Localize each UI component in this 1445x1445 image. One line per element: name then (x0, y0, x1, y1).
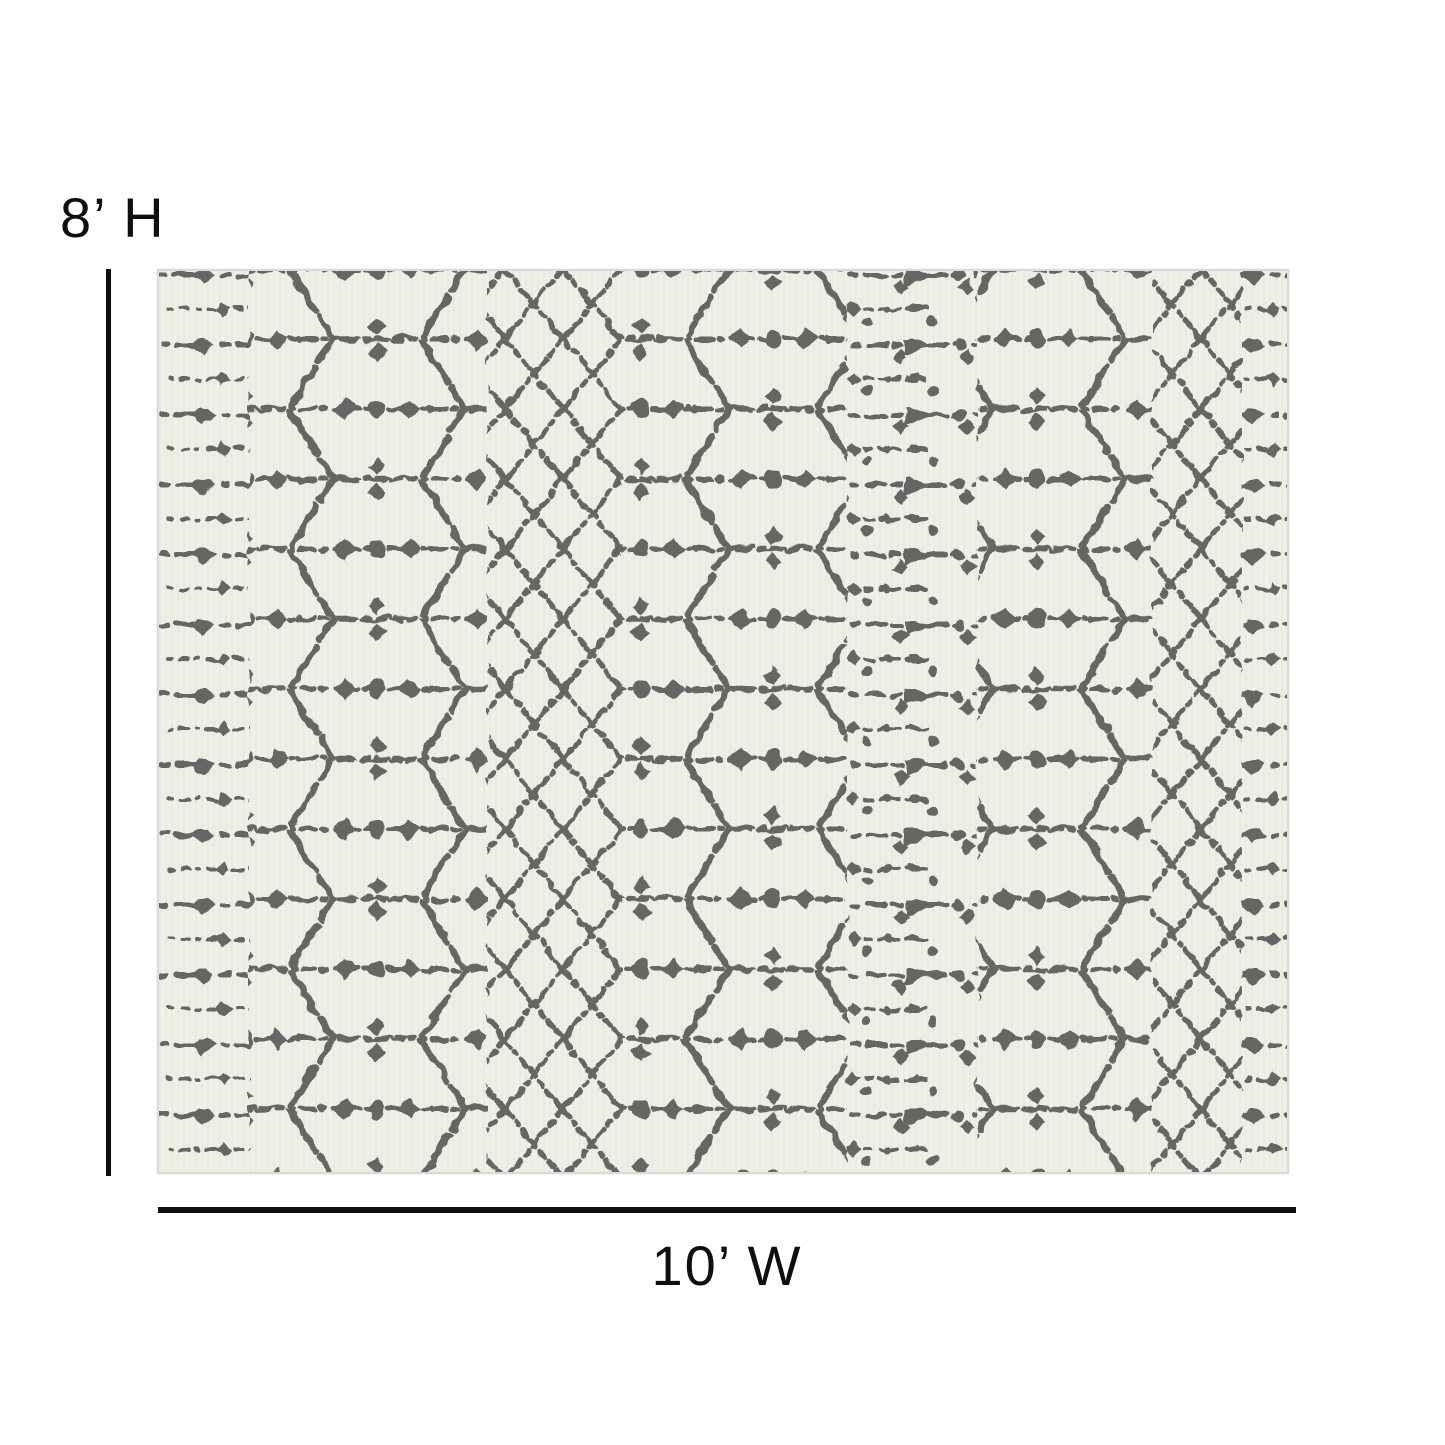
rug-pattern (157, 269, 1289, 1174)
width-dimension-line (158, 1207, 1296, 1213)
product-dimension-figure: 8’ H (0, 0, 1445, 1445)
rug-image (157, 269, 1289, 1174)
height-dimension-line (106, 269, 111, 1176)
width-label-container: 10’ W (158, 1238, 1296, 1294)
height-dimension-label: 8’ H (60, 190, 166, 246)
width-dimension-label: 10’ W (651, 1234, 802, 1297)
rug-pattern-svg (157, 269, 1289, 1174)
